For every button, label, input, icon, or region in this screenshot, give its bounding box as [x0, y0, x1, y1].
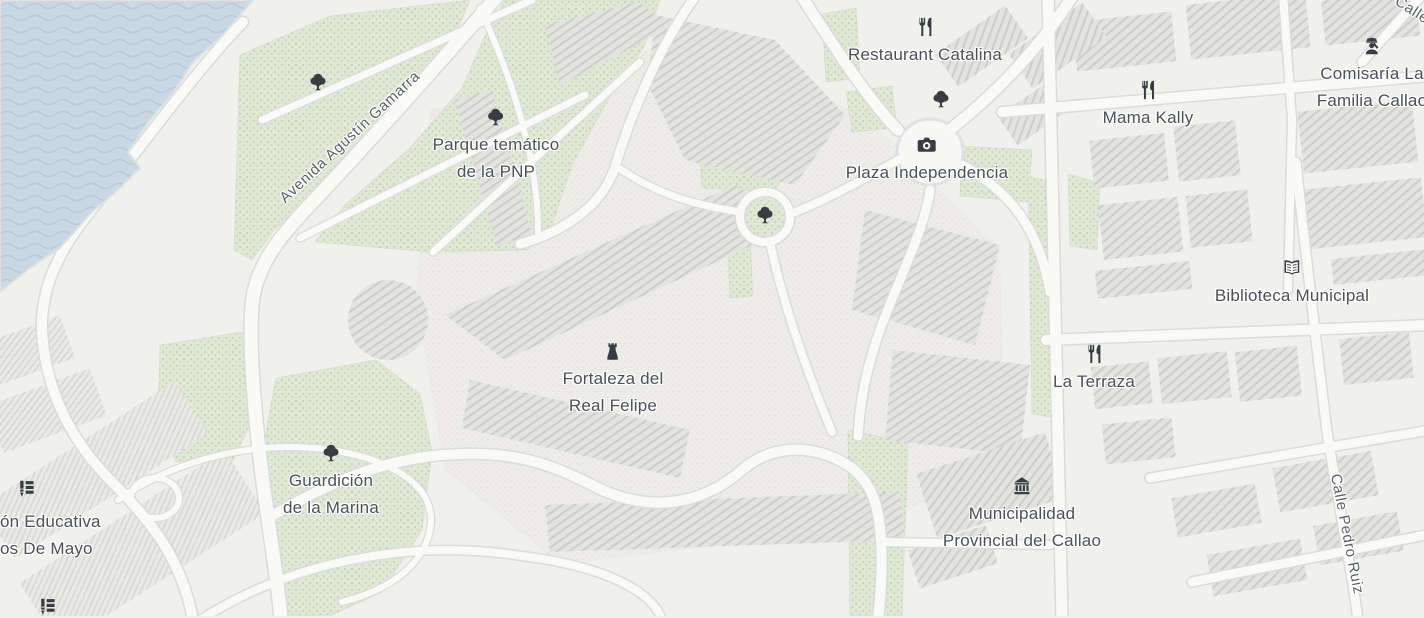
poi-label-line1: ón Educativa	[0, 512, 101, 531]
poi-label: La Terraza	[1053, 372, 1135, 391]
poi-la-terraza[interactable]: La Terraza	[1053, 343, 1135, 395]
poi-label-line2: os De Mayo	[0, 539, 93, 558]
school-icon	[37, 596, 59, 618]
tree-icon	[485, 106, 507, 128]
poi-label-line2: de la PNP	[457, 162, 535, 181]
poi-label-line1: Municipalidad	[969, 504, 1076, 523]
poi-biblioteca-municipal[interactable]: Biblioteca Municipal	[1215, 257, 1369, 309]
poi-restaurant-catalina[interactable]: Restaurant Catalina	[848, 16, 1002, 68]
poi-tree-marker[interactable]	[930, 88, 952, 110]
map-canvas[interactable]	[0, 0, 1424, 616]
poi-municipalidad-callao[interactable]: Municipalidad Provincial del Callao	[943, 475, 1101, 554]
poi-school-marker[interactable]	[37, 596, 59, 618]
poi-label-line1: Fortaleza del	[563, 369, 664, 388]
poi-label-line2: de la Marina	[283, 498, 379, 517]
map-viewport[interactable]: Restaurant Catalina Mama Kally Comisaría…	[0, 0, 1424, 616]
poi-label: Plaza Independencia	[846, 163, 1009, 182]
poi-label-line1: Parque temático	[433, 135, 560, 154]
poi-label-line2: Familia Callao	[1317, 91, 1424, 110]
poi-tree-marker[interactable]	[307, 71, 329, 93]
poi-label-line2: Provincial del Callao	[943, 531, 1101, 550]
poi-parque-tematico-pnp[interactable]: Parque temático de la PNP	[433, 106, 560, 185]
poi-label: Mama Kally	[1103, 108, 1194, 127]
camera-icon	[916, 134, 938, 156]
book-icon	[1281, 257, 1303, 279]
tree-icon	[307, 71, 329, 93]
school-icon	[16, 478, 38, 500]
poi-institucion-educativa-label: ón Educativa os De Mayo	[0, 508, 101, 562]
castle-icon	[602, 340, 624, 362]
police-icon	[1361, 35, 1383, 57]
poi-label-line1: Guardición	[289, 471, 373, 490]
poi-guardicion-de-la-marina[interactable]: Guardición de la Marina	[283, 442, 379, 521]
poi-institucion-educativa[interactable]	[16, 478, 38, 503]
poi-mama-kally[interactable]: Mama Kally	[1103, 79, 1194, 131]
restaurant-icon	[1137, 79, 1159, 101]
poi-comisaria-la-familia-callao[interactable]: Comisaría La Familia Callao	[1317, 35, 1424, 114]
tree-icon	[320, 442, 342, 464]
restaurant-icon	[1083, 343, 1105, 365]
poi-fortaleza-real-felipe[interactable]: Fortaleza del Real Felipe	[563, 340, 664, 419]
poi-label-line2: Real Felipe	[569, 396, 657, 415]
poi-tree-marker[interactable]	[754, 204, 776, 226]
poi-label-line1: Comisaría La	[1320, 64, 1424, 83]
poi-label: Biblioteca Municipal	[1215, 286, 1369, 305]
poi-label: Restaurant Catalina	[848, 45, 1002, 64]
bank-icon	[1011, 475, 1033, 497]
tree-icon	[754, 204, 776, 226]
poi-plaza-independencia[interactable]: Plaza Independencia	[846, 134, 1009, 186]
tree-icon	[930, 88, 952, 110]
restaurant-icon	[914, 16, 936, 38]
